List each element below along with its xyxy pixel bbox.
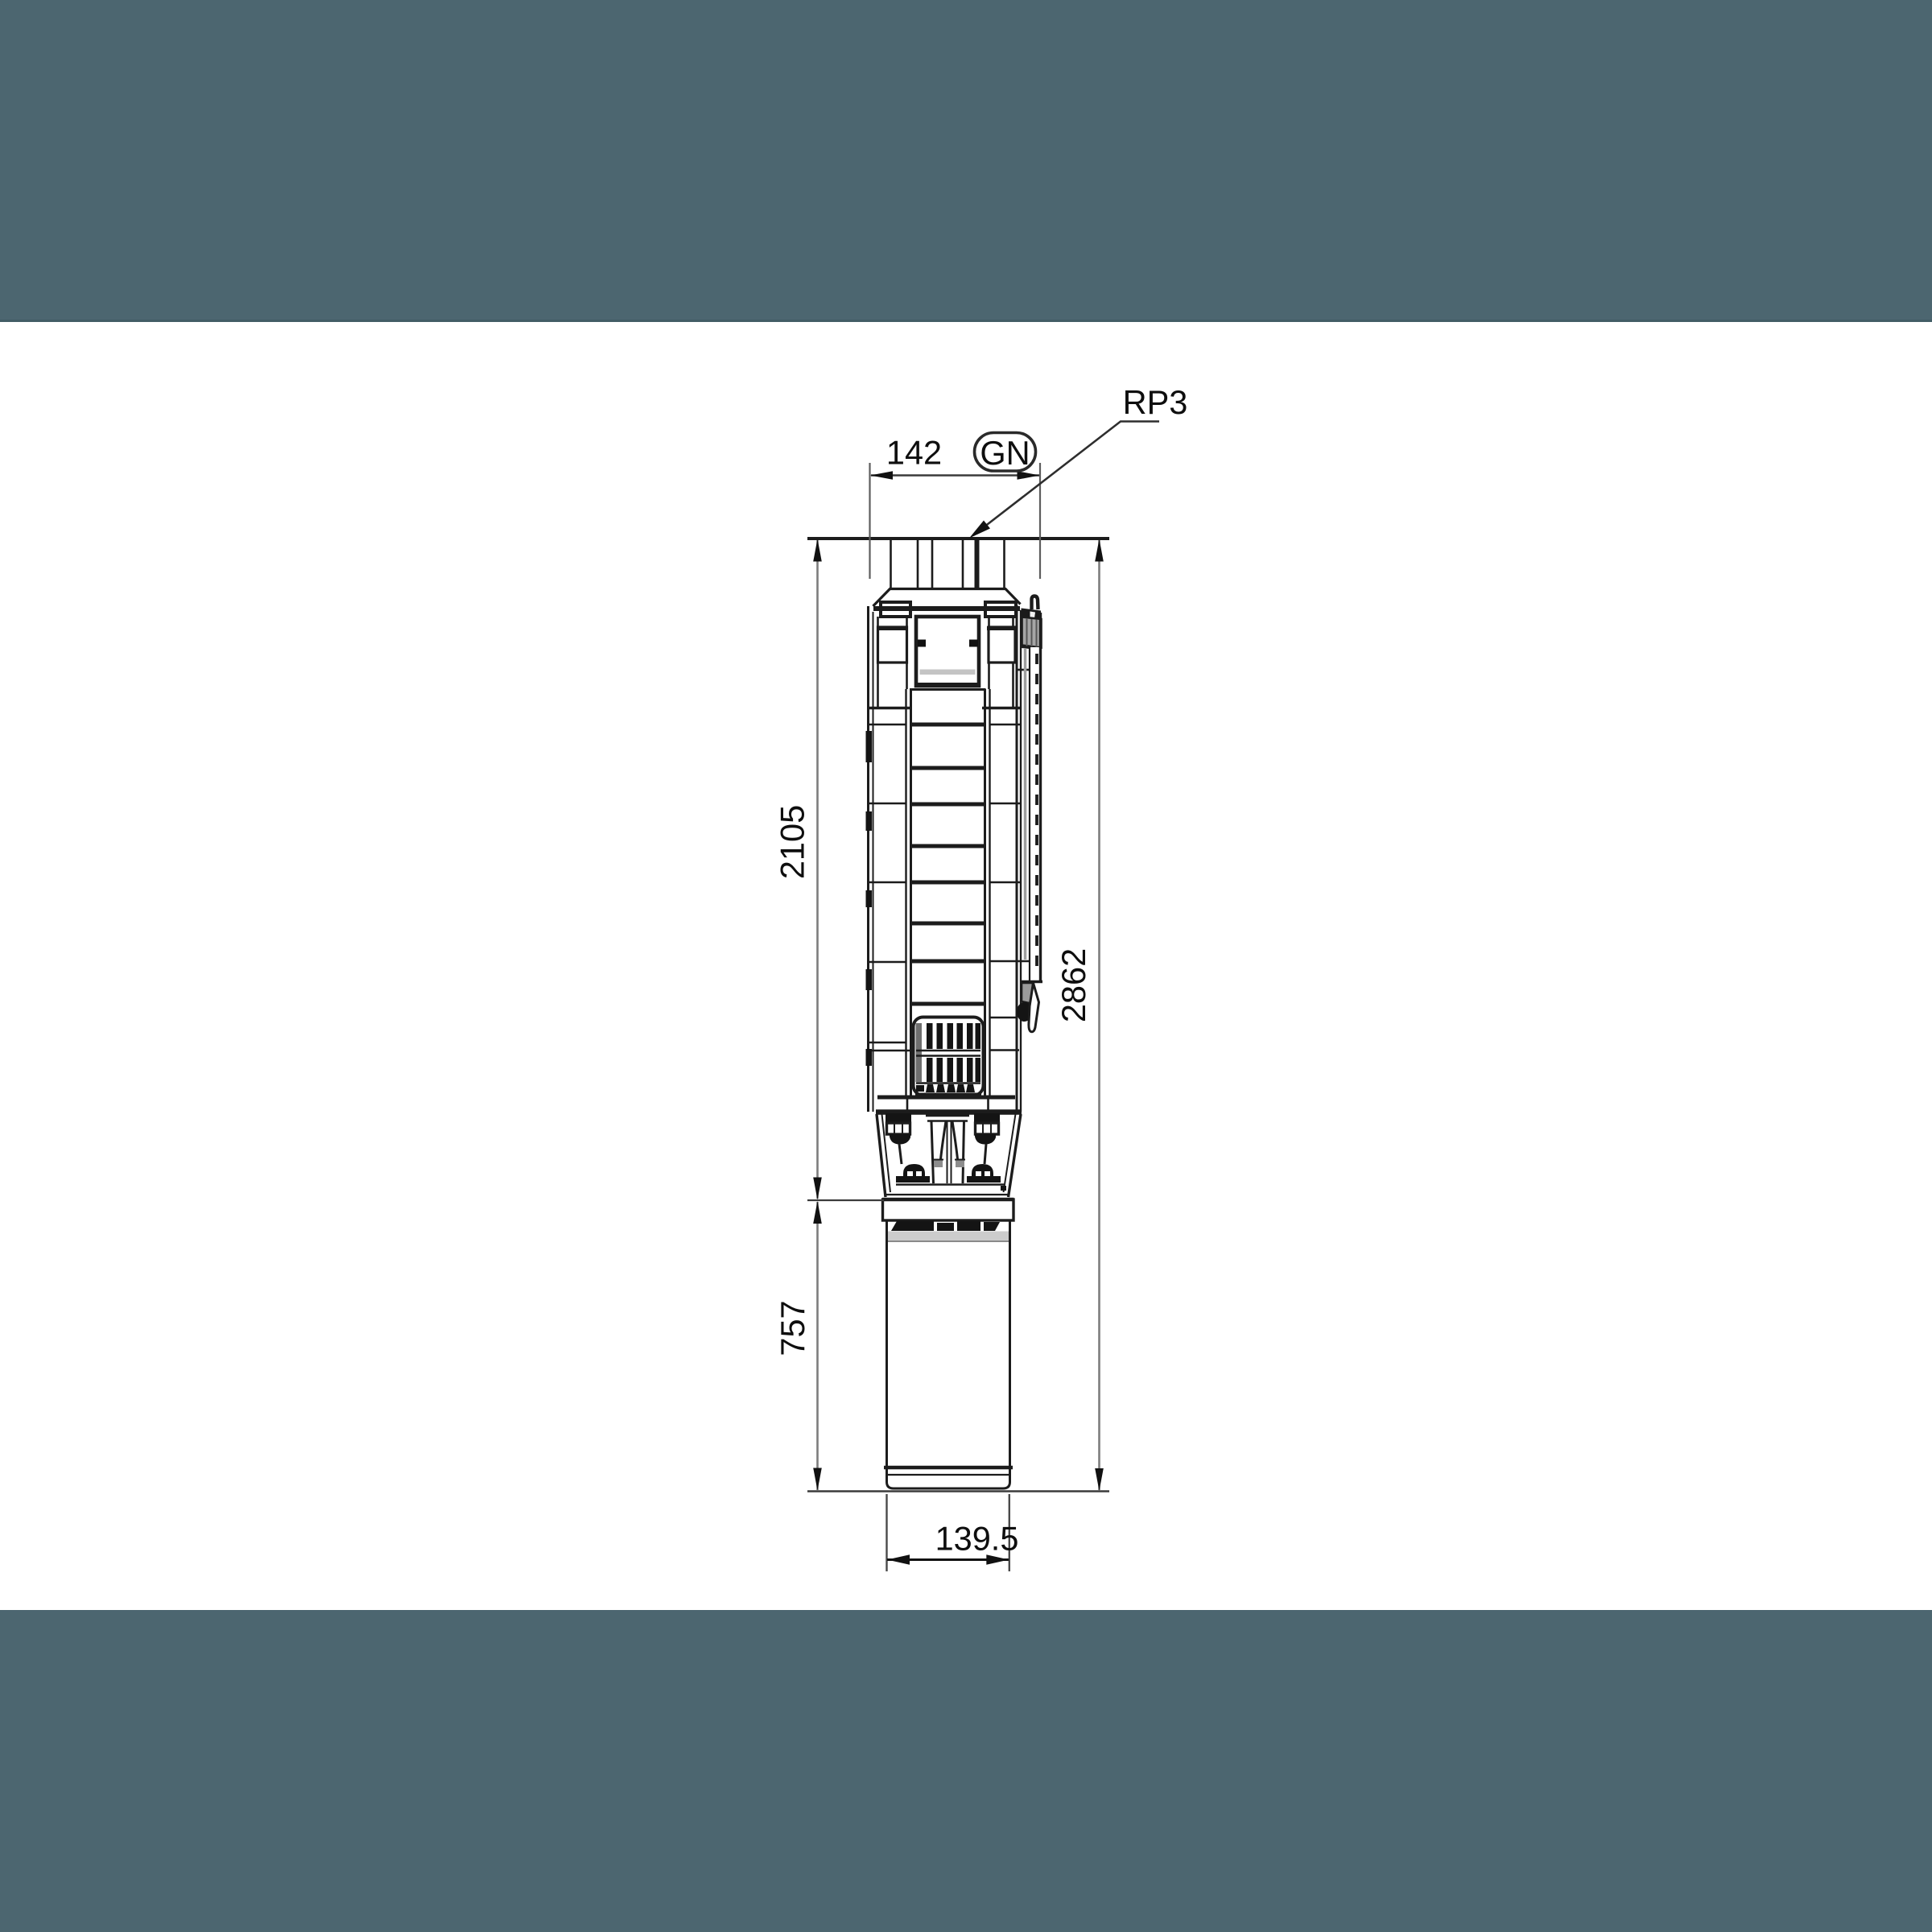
svg-text:2862: 2862 [1055,948,1092,1022]
svg-text:2105: 2105 [774,805,811,879]
svg-text:757: 757 [774,1300,811,1356]
svg-text:142: 142 [886,434,942,472]
svg-text:RP3: RP3 [1123,383,1188,421]
svg-text:GN: GN [980,434,1030,472]
svg-text:139.5: 139.5 [935,1520,1019,1558]
